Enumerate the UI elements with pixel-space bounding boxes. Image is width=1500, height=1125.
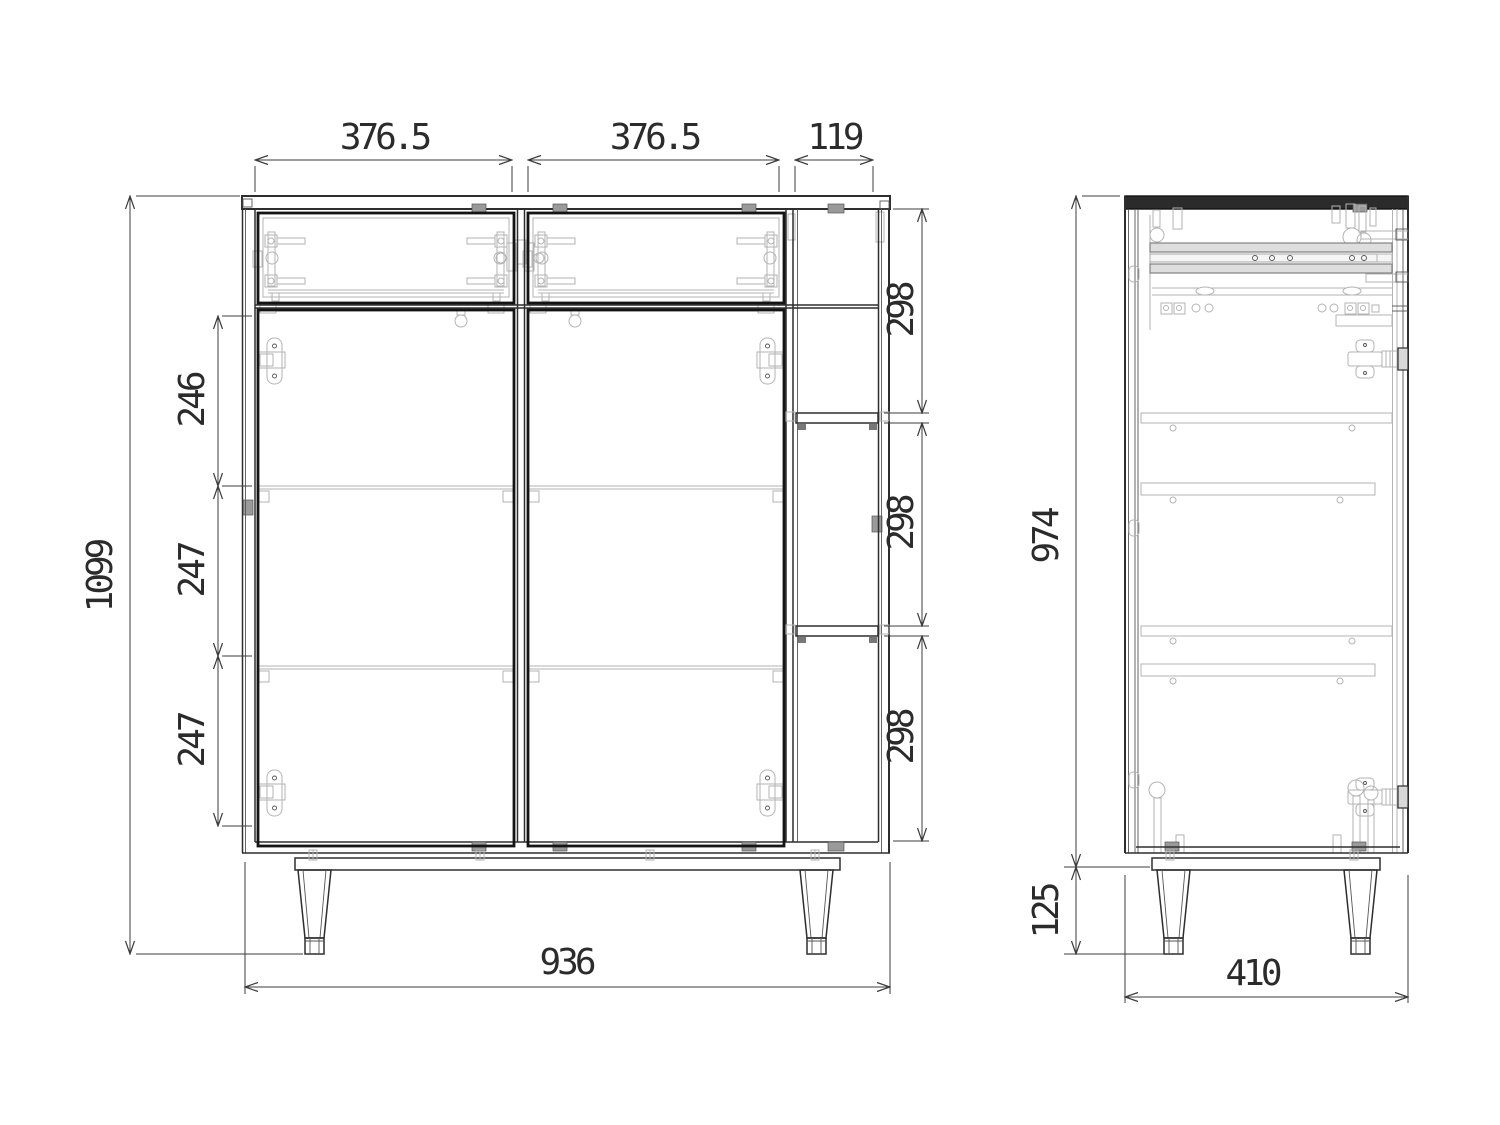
side-front-edge xyxy=(1392,196,1408,853)
dim-text-376-left: 376.5 xyxy=(340,117,430,158)
dim-text-246: 246 xyxy=(172,372,213,427)
door-right xyxy=(528,310,784,846)
dim-text-936: 936 xyxy=(539,942,594,983)
carcass xyxy=(242,196,890,853)
side-shelves xyxy=(1141,413,1392,684)
dim-chain-right: 298 298 298 xyxy=(881,209,929,841)
dim-text-125: 125 xyxy=(1026,884,1067,938)
dim-text-974: 974 xyxy=(1026,508,1067,563)
dim-text-298-bottom: 298 xyxy=(881,709,922,764)
dim-text-376-right: 376.5 xyxy=(610,117,700,158)
dim-width-overall: 936 xyxy=(245,862,890,994)
dim-text-1099: 1099 xyxy=(80,539,121,612)
dim-text-247-middle: 247 xyxy=(172,543,213,597)
front-view xyxy=(242,196,890,954)
dim-depth-overall: 410 xyxy=(1125,875,1408,1003)
dim-text-298-middle: 298 xyxy=(881,495,922,550)
dim-width-left-section: 376.5 xyxy=(255,117,512,192)
dim-side-heights: 974 125 xyxy=(1026,196,1164,954)
base-front xyxy=(295,850,840,954)
dim-width-right-section: 376.5 xyxy=(528,117,779,192)
side-view xyxy=(1125,196,1408,954)
base-side xyxy=(1125,847,1408,954)
panel-fittings xyxy=(243,212,884,532)
side-bottom-fittings xyxy=(1149,780,1378,853)
drawer-slide-assembly xyxy=(1150,204,1408,330)
drawing-canvas: 376.5 376.5 119 1099 xyxy=(0,0,1500,1125)
dim-text-410: 410 xyxy=(1225,953,1280,994)
dim-chain-left: 246 247 247 xyxy=(172,316,252,826)
dim-width-side-column: 119 xyxy=(795,117,873,192)
cabinet-technical-drawing: 376.5 376.5 119 1099 xyxy=(0,0,1500,1125)
door-left xyxy=(258,310,514,846)
dim-text-119: 119 xyxy=(807,117,862,158)
side-back-panel xyxy=(1125,196,1139,853)
dim-text-298-top: 298 xyxy=(881,282,922,337)
dim-text-247-bottom: 247 xyxy=(172,713,213,767)
